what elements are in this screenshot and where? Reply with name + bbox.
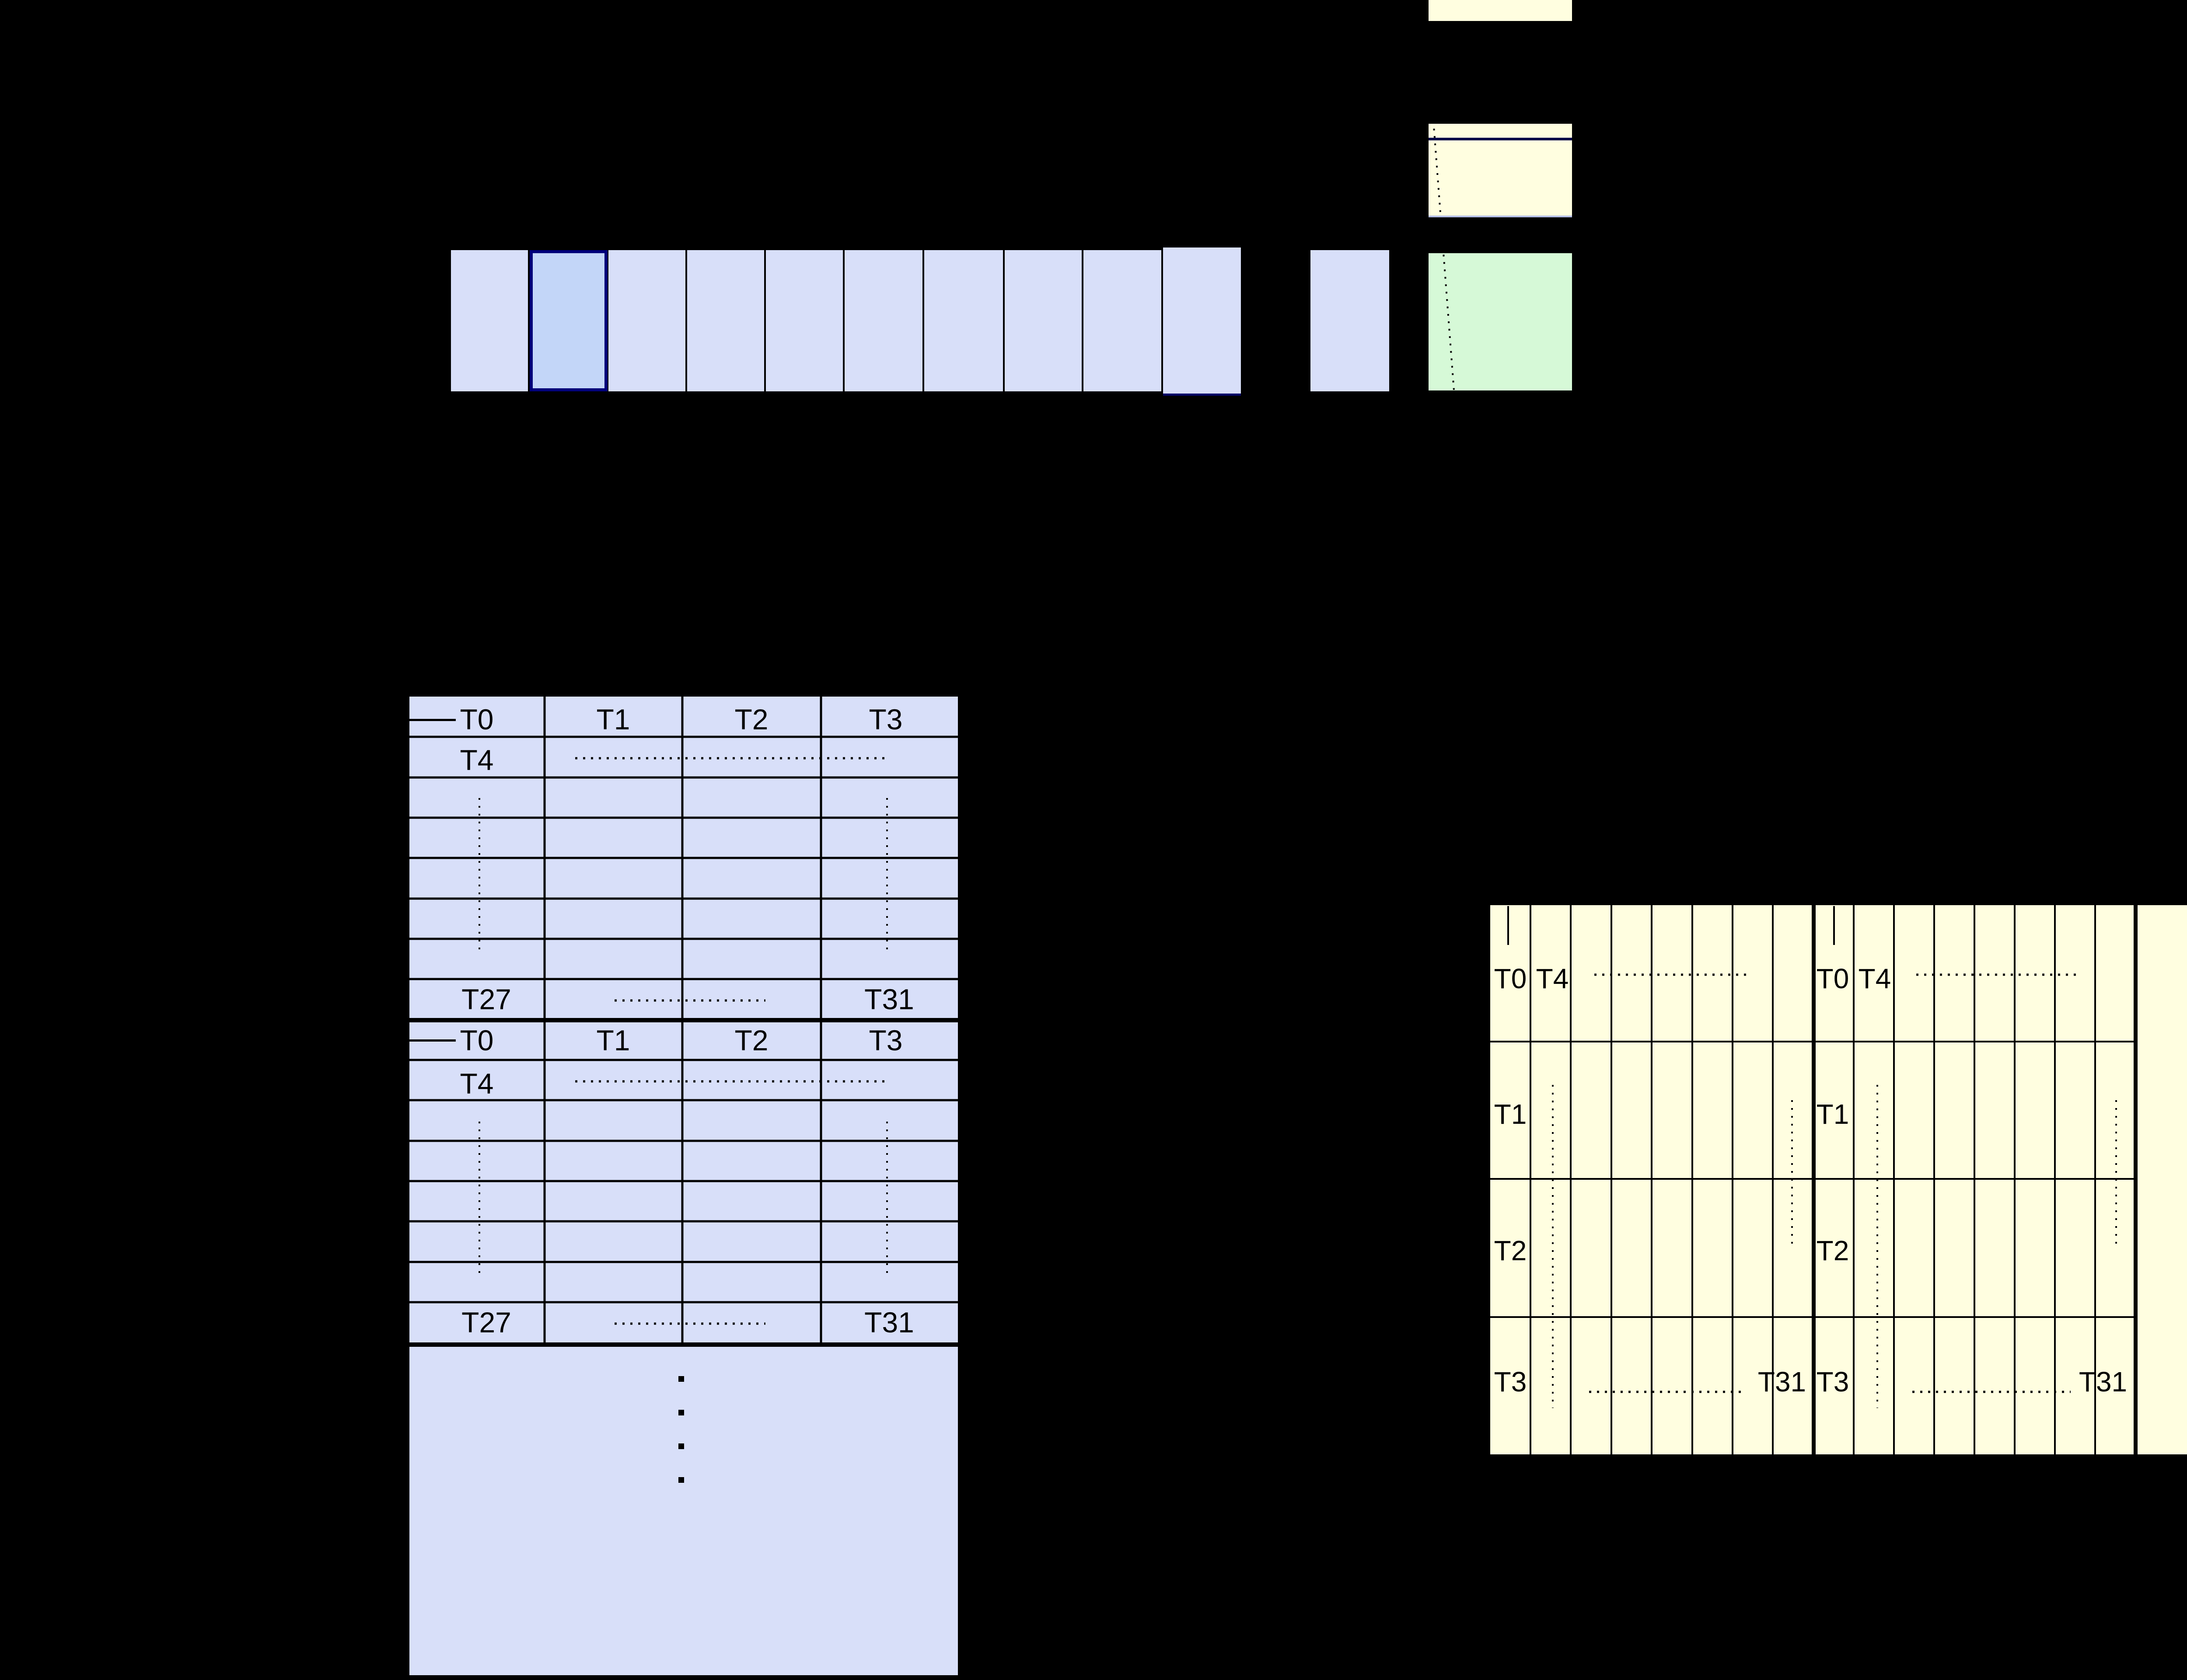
svg-text:T1: T1 bbox=[1494, 1098, 1527, 1130]
svg-text:T0: T0 bbox=[460, 1024, 493, 1056]
svg-text:T31: T31 bbox=[1758, 1366, 1806, 1398]
svg-text:T3: T3 bbox=[869, 1024, 902, 1056]
svg-text:T3: T3 bbox=[1494, 1366, 1527, 1398]
svg-text:T0: T0 bbox=[1817, 963, 1849, 994]
svg-text:T4: T4 bbox=[1536, 963, 1569, 994]
svg-text:T4: T4 bbox=[1859, 963, 1891, 994]
svg-text:T4: T4 bbox=[460, 744, 493, 776]
svg-text:T3: T3 bbox=[869, 703, 902, 735]
svg-text:T1: T1 bbox=[596, 1024, 630, 1056]
svg-text:T0: T0 bbox=[460, 703, 493, 735]
svg-text:T27: T27 bbox=[461, 1306, 511, 1338]
svg-text:T31: T31 bbox=[2079, 1366, 2127, 1398]
svg-text:T4: T4 bbox=[460, 1067, 493, 1100]
svg-text:T2: T2 bbox=[734, 703, 768, 735]
svg-text:T3: T3 bbox=[1817, 1366, 1849, 1398]
svg-text:T0: T0 bbox=[1494, 963, 1527, 994]
svg-text:T2: T2 bbox=[1494, 1235, 1527, 1266]
svg-text:T31: T31 bbox=[864, 983, 914, 1015]
svg-text:T2: T2 bbox=[734, 1024, 768, 1056]
svg-text:T1: T1 bbox=[1817, 1098, 1849, 1130]
svg-text:T31: T31 bbox=[864, 1306, 914, 1338]
svg-text:T1: T1 bbox=[596, 703, 630, 735]
svg-text:T27: T27 bbox=[461, 983, 511, 1015]
svg-text:T2: T2 bbox=[1817, 1235, 1849, 1266]
